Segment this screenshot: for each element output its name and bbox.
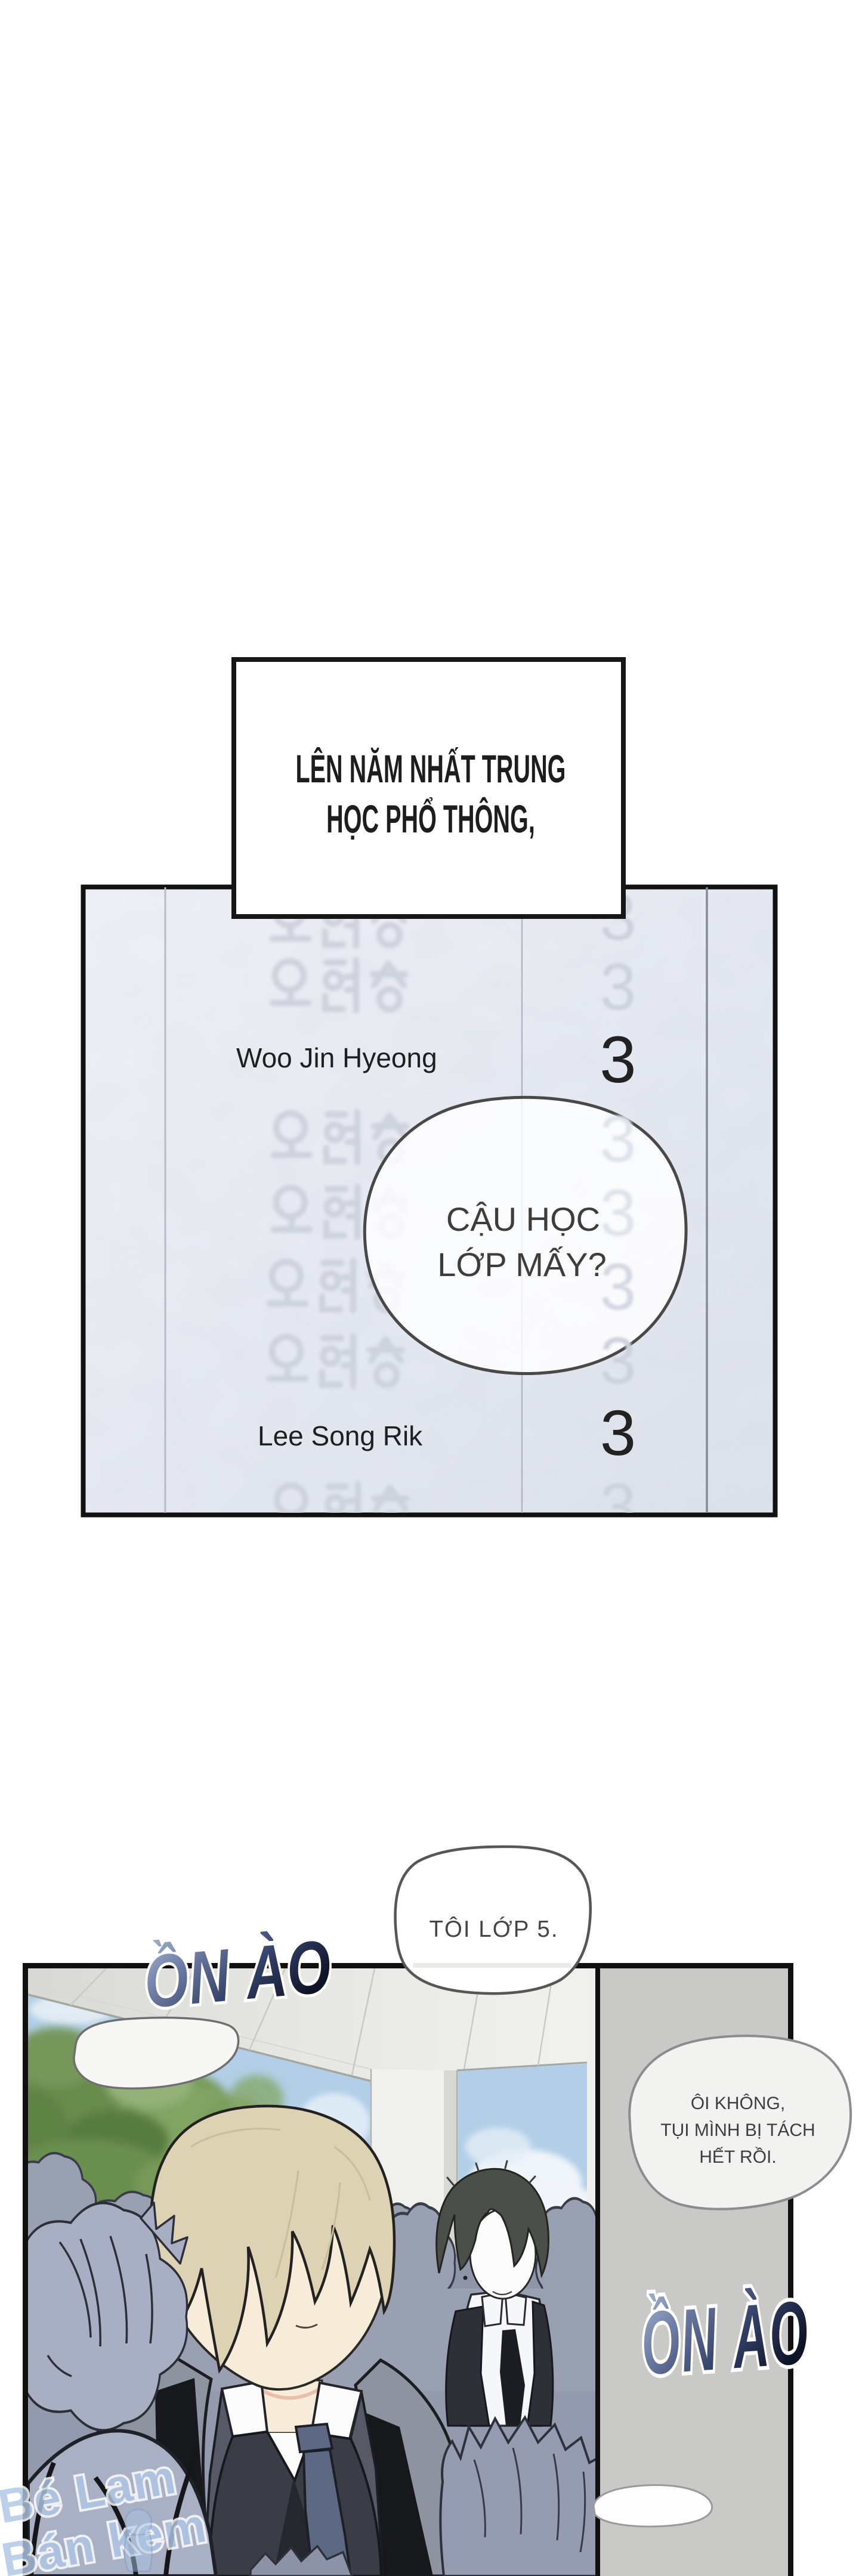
svg-text:TÔI LỚP 5.: TÔI LỚP 5.	[429, 1916, 558, 1942]
svg-text:3: 3	[600, 1023, 636, 1097]
svg-text:3: 3	[600, 1176, 636, 1250]
svg-text:CẬU HỌC: CẬU HỌC	[446, 1200, 600, 1238]
svg-text:3: 3	[600, 1324, 636, 1398]
svg-text:LỚP MẤY?: LỚP MẤY?	[437, 1246, 607, 1283]
svg-text:ỒN ÀO: ỒN ÀO	[638, 2281, 812, 2394]
svg-text:3: 3	[600, 1470, 636, 1544]
svg-text:HẾT RỒI.: HẾT RỒI.	[699, 2147, 776, 2167]
svg-text:ÔI KHÔNG,: ÔI KHÔNG,	[691, 2093, 785, 2113]
svg-text:TỤI MÌNH BỊ TÁCH: TỤI MÌNH BỊ TÁCH	[660, 2120, 815, 2140]
svg-text:3: 3	[600, 1250, 636, 1324]
svg-text:ỒN ÀO: ỒN ÀO	[141, 1924, 335, 2024]
svg-text:HỌC PHỔ THÔNG,: HỌC PHỔ THÔNG,	[326, 797, 535, 841]
svg-text:3: 3	[600, 950, 636, 1024]
svg-text:3: 3	[600, 1397, 636, 1469]
svg-text:LÊN NĂM NHẤT TRUNG: LÊN NĂM NHẤT TRUNG	[295, 747, 566, 791]
svg-text:Lee Song Rik: Lee Song Rik	[258, 1420, 423, 1451]
svg-text:3: 3	[600, 1103, 636, 1176]
svg-text:Woo Jin Hyeong: Woo Jin Hyeong	[236, 1042, 437, 1073]
